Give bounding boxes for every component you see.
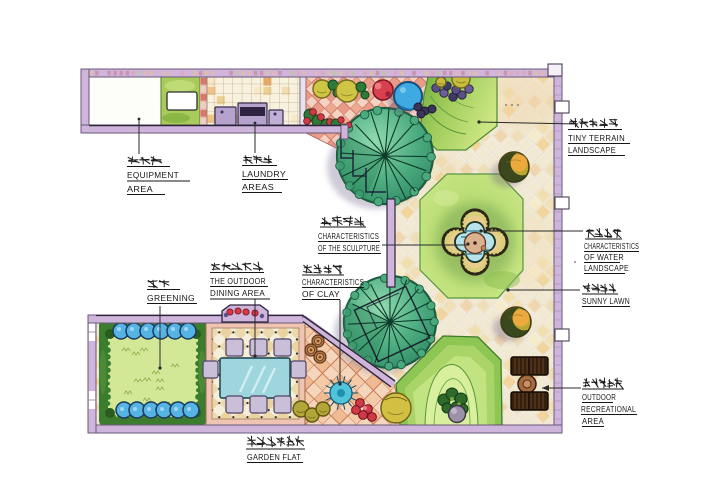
svg-text:LANDSCAPE: LANDSCAPE	[568, 146, 616, 155]
svg-text:GREENING: GREENING	[147, 294, 195, 303]
svg-text:AREAS: AREAS	[242, 183, 274, 192]
svg-text:AREA: AREA	[582, 417, 604, 426]
svg-text:CHARACTERISTICS: CHARACTERISTICS	[302, 278, 364, 287]
svg-text:OUTDOOR: OUTDOOR	[582, 393, 616, 402]
svg-text:CHARACTERISTICS: CHARACTERISTICS	[584, 242, 639, 251]
svg-text:CHARACTERISTICS: CHARACTERISTICS	[318, 232, 379, 241]
svg-text:GARDEN FLAT: GARDEN FLAT	[247, 453, 301, 462]
svg-text:OF CLAY: OF CLAY	[302, 290, 341, 299]
svg-text:OF THE SCULPTURE: OF THE SCULPTURE	[318, 244, 380, 253]
svg-text:AREA: AREA	[127, 185, 154, 194]
svg-text:EQUIPMENT: EQUIPMENT	[127, 171, 179, 180]
svg-text:LAUNDRY: LAUNDRY	[242, 170, 287, 179]
svg-text:TINY TERRAIN: TINY TERRAIN	[568, 134, 625, 143]
svg-text:THE OUTDOOR: THE OUTDOOR	[210, 277, 266, 286]
svg-text:SUNNY LAWN: SUNNY LAWN	[582, 297, 630, 306]
svg-text:OF WATER: OF WATER	[584, 253, 624, 262]
svg-text:DINING AREA: DINING AREA	[210, 289, 266, 298]
svg-text:LANDSCAPE: LANDSCAPE	[584, 264, 629, 273]
svg-text:RECREATIONAL: RECREATIONAL	[581, 405, 636, 414]
